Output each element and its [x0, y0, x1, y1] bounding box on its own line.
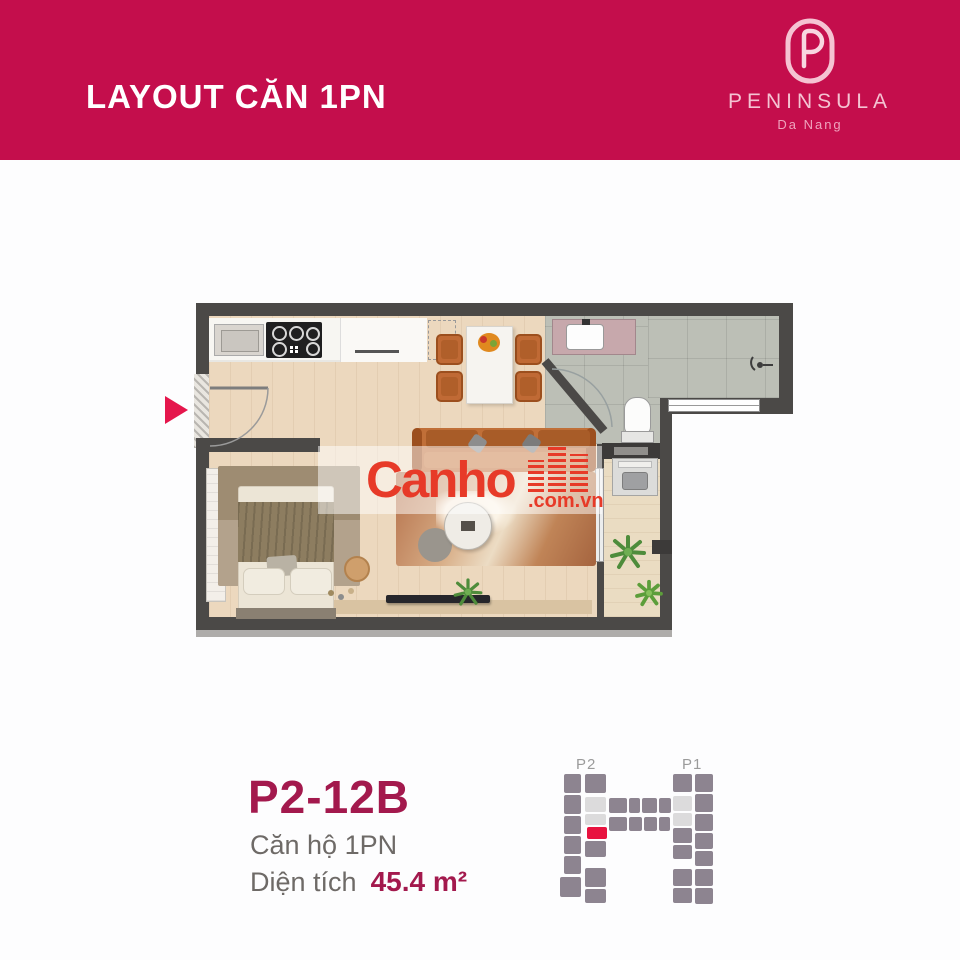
- unit-code: P2-12B: [248, 770, 410, 824]
- keyplan-highlighted-unit: [587, 827, 607, 839]
- keyplan-unit-block: [673, 813, 692, 826]
- keyplan-blocks: [540, 748, 790, 923]
- entry-marker-icon: [165, 396, 188, 424]
- bed-pillow: [243, 568, 285, 595]
- site-keyplan: P2 P1: [540, 748, 790, 923]
- ac-ledge: [602, 443, 660, 459]
- keyplan-unit-block: [585, 814, 606, 825]
- balcony-wall-stub: [652, 540, 672, 554]
- entry-door-opening: [194, 374, 209, 448]
- keyplan-unit-block: [695, 814, 713, 831]
- bed-pillow: [290, 568, 332, 595]
- watermark: Canho .com.vn: [360, 448, 610, 518]
- keyplan-unit-block: [564, 856, 581, 874]
- keyplan-unit-block: [695, 851, 713, 866]
- unit-type: Căn hộ 1PN: [250, 830, 397, 861]
- keyplan-unit-block: [609, 798, 627, 813]
- dining-chair: [515, 334, 542, 365]
- keyplan-unit-block: [564, 836, 581, 854]
- keyplan-unit-block: [659, 798, 671, 813]
- keyplan-unit-block: [609, 817, 627, 831]
- fruit-bowl: [478, 333, 500, 352]
- area-value: 45.4 m²: [371, 866, 468, 897]
- keyplan-unit-block: [564, 774, 581, 793]
- washing-machine: [612, 458, 658, 496]
- kitchen-sink: [214, 324, 264, 356]
- layout-slide: LAYOUT CĂN 1PN PENINSULA Da Nang: [0, 0, 960, 960]
- watermark-domain: .com.vn: [528, 490, 604, 513]
- cooktop: [266, 322, 322, 358]
- keyplan-unit-block: [644, 817, 657, 831]
- side-stool: [344, 556, 370, 582]
- brand-logo: PENINSULA Da Nang: [720, 18, 900, 132]
- watermark-brand: Canho: [366, 450, 515, 509]
- drying-yard-floor: [648, 316, 779, 398]
- keyplan-unit-block: [673, 828, 692, 843]
- faucet: [582, 319, 590, 325]
- wing-window: [668, 399, 760, 412]
- brand-subtitle: Da Nang: [720, 117, 900, 132]
- keyplan-unit-block: [695, 794, 713, 812]
- area-label: Diện tích: [250, 867, 357, 897]
- keyplan-unit-block: [673, 869, 692, 886]
- decor-items: [328, 590, 334, 596]
- keyplan-unit-block: [629, 798, 640, 813]
- bedroom-partition-wall: [196, 438, 320, 452]
- peninsula-monogram-icon: [784, 18, 836, 84]
- keyplan-unit-block: [659, 817, 670, 831]
- keyplan-unit-block: [695, 888, 713, 904]
- bathroom-sink: [566, 324, 604, 350]
- dining-chair: [515, 371, 542, 402]
- tv: [386, 595, 490, 603]
- keyplan-unit-block: [695, 833, 713, 849]
- keyplan-unit-block: [564, 795, 581, 814]
- keyplan-unit-block: [629, 817, 642, 831]
- brand-name: PENINSULA: [720, 90, 900, 114]
- keyplan-unit-block: [585, 889, 606, 903]
- dining-chair: [436, 334, 463, 365]
- toilet: [621, 397, 654, 443]
- keyplan-unit-block: [673, 774, 692, 792]
- dining-chair: [436, 371, 463, 402]
- keyplan-unit-block: [673, 796, 692, 811]
- keyplan-unit-block: [585, 774, 606, 793]
- keyplan-unit-block: [560, 877, 581, 897]
- keyplan-unit-block: [695, 774, 713, 792]
- keyplan-unit-block: [585, 797, 606, 812]
- header-banner: LAYOUT CĂN 1PN PENINSULA Da Nang: [0, 0, 960, 160]
- keyplan-unit-block: [564, 816, 581, 834]
- kitchen-cabinet: [340, 318, 427, 362]
- unit-area: Diện tích45.4 m²: [250, 866, 467, 898]
- keyplan-unit-block: [673, 845, 692, 859]
- bottom-ledge: [196, 630, 672, 637]
- keyplan-unit-block: [585, 868, 606, 887]
- keyplan-unit-block: [673, 888, 692, 903]
- page-title: LAYOUT CĂN 1PN: [86, 78, 387, 116]
- keyplan-unit-block: [585, 841, 606, 857]
- bed-headboard: [236, 608, 336, 619]
- watermark-building-icon: [528, 446, 588, 492]
- keyplan-unit-block: [695, 869, 713, 886]
- keyplan-unit-block: [642, 798, 657, 813]
